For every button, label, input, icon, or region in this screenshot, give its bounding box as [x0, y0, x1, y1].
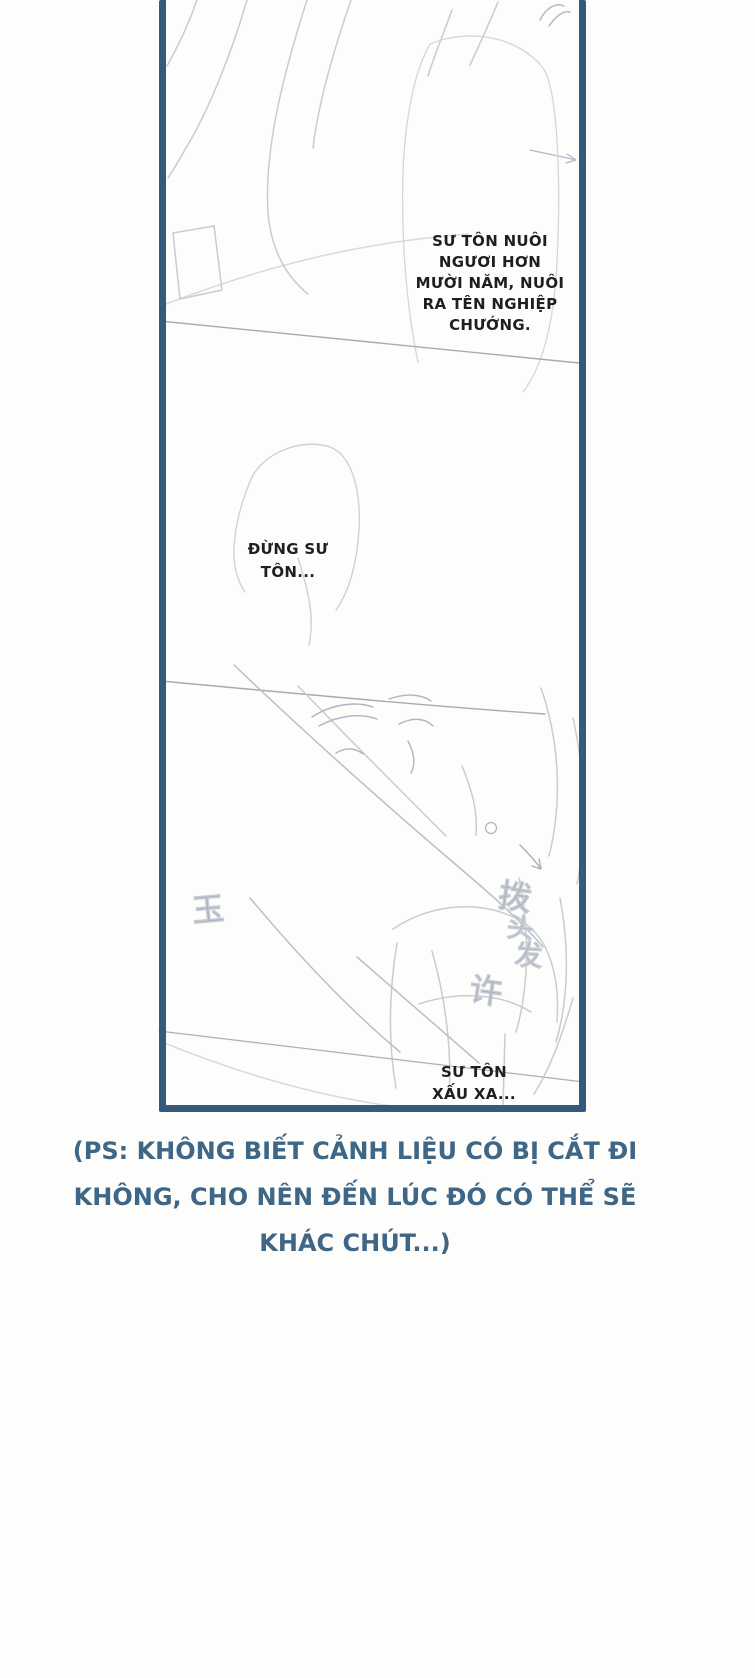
speech-bubble-2-text: ĐỪNG SƯ TÔN... — [218, 538, 358, 584]
dialogue-line: NGƯƠI HƠN — [398, 252, 582, 273]
dialogue-line: CHƯỚNG. — [398, 315, 582, 336]
dialogue-line: ĐỪNG SƯ — [218, 538, 358, 561]
dialogue-line: XẤU XA... — [400, 1083, 548, 1105]
dialogue-line: SƯ TÔN — [400, 1061, 548, 1083]
dialogue-line: TÔN... — [218, 561, 358, 584]
dialogue-line: MƯỜI NĂM, NUÔI — [398, 273, 582, 294]
translator-note: (PS: KHÔNG BIẾT CẢNH LIỆU CÓ BỊ CẮT ĐI K… — [55, 1128, 655, 1266]
note-line: (PS: KHÔNG BIẾT CẢNH LIỆU CÓ BỊ CẮT ĐI — [55, 1128, 655, 1174]
speech-bubble-1-text: SƯ TÔN NUÔI NGƯƠI HƠN MƯỜI NĂM, NUÔI RA … — [398, 231, 582, 336]
speech-bubble-3-text: SƯ TÔN XẤU XA... — [400, 1061, 548, 1105]
note-line: KHÔNG, CHO NÊN ĐẾN LÚC ĐÓ CÓ THỂ SẼ — [55, 1174, 655, 1220]
comic-page: 玉 拨 头 发 许 SƯ TÔN NUÔI NGƯƠI HƠN MƯỜI NĂM… — [0, 0, 755, 1678]
dialogue-line: RA TÊN NGHIỆP — [398, 294, 582, 315]
note-line: KHÁC CHÚT...) — [55, 1220, 655, 1266]
dialogue-line: SƯ TÔN NUÔI — [398, 231, 582, 252]
